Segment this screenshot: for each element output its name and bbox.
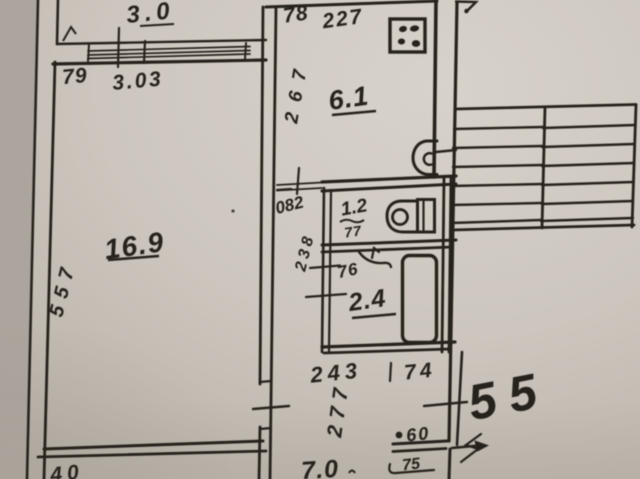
- svg-text:77: 77: [343, 222, 363, 240]
- svg-text:3.03: 3.03: [111, 67, 164, 94]
- svg-text:40: 40: [48, 460, 85, 479]
- svg-text:75: 75: [401, 455, 422, 474]
- svg-text:7.0: 7.0: [300, 455, 340, 479]
- svg-text:79: 79: [61, 64, 88, 89]
- svg-text:74: 74: [403, 358, 437, 384]
- svg-text:60: 60: [405, 423, 431, 445]
- svg-text:6.1: 6.1: [327, 81, 371, 116]
- svg-text:78: 78: [282, 1, 310, 27]
- svg-text:2.4: 2.4: [346, 284, 388, 317]
